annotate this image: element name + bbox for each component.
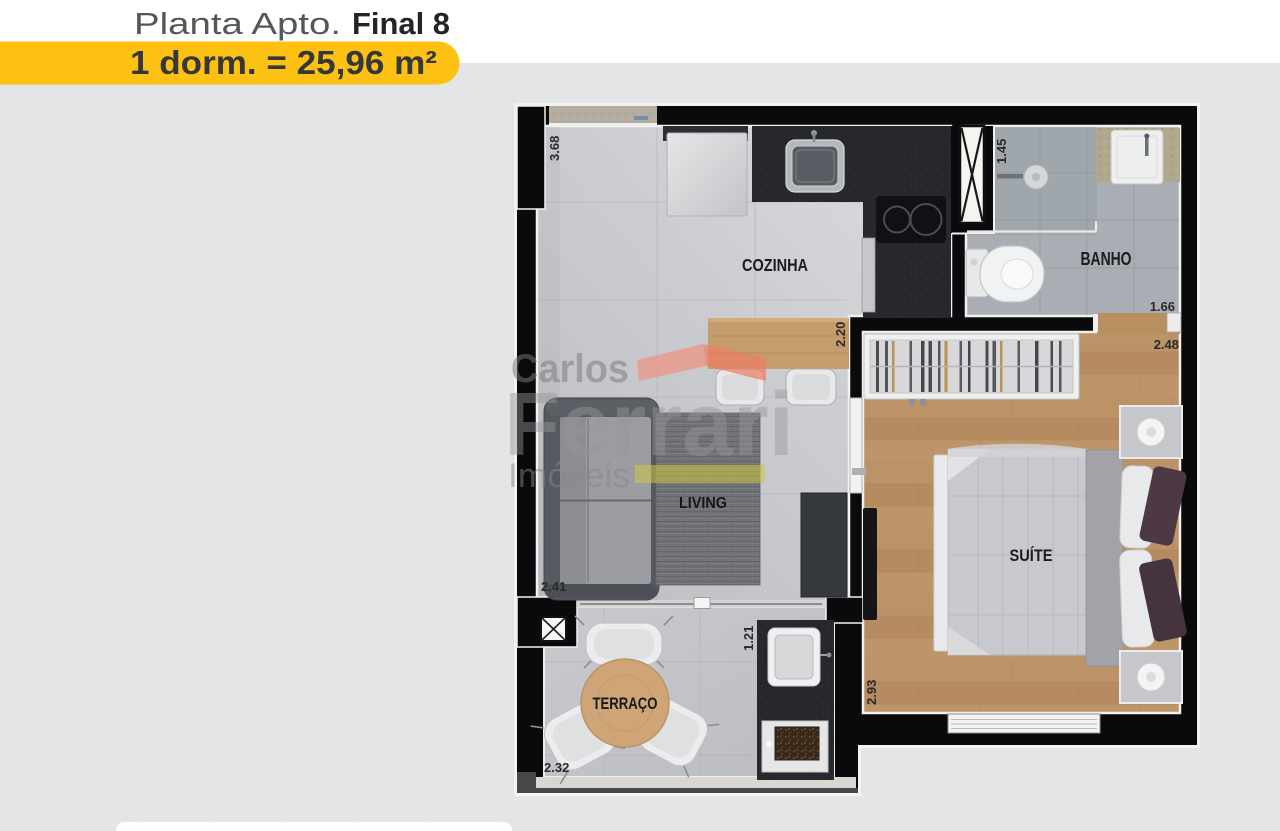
svg-text:2.48: 2.48 (1154, 337, 1179, 352)
svg-text:SUÍTE: SUÍTE (1010, 546, 1053, 565)
svg-text:1.45: 1.45 (994, 139, 1009, 164)
svg-text:2.41: 2.41 (541, 579, 566, 594)
svg-text:2.93: 2.93 (864, 680, 879, 705)
svg-text:TERRAÇO: TERRAÇO (593, 694, 658, 713)
svg-text:1.21: 1.21 (741, 626, 756, 651)
svg-text:Planta Apto.: Planta Apto. (134, 6, 341, 41)
svg-text:3.68: 3.68 (547, 136, 562, 161)
svg-text:LIVING: LIVING (679, 495, 727, 512)
svg-text:Imóveis: Imóveis (508, 457, 630, 495)
svg-text:Final 8: Final 8 (352, 6, 450, 41)
svg-text:COZINHA: COZINHA (742, 255, 808, 275)
svg-text:1 dorm. = 25,96 m²: 1 dorm. = 25,96 m² (130, 44, 437, 81)
svg-text:3.18: 3.18 (922, 131, 947, 146)
svg-text:BANHO: BANHO (1081, 249, 1132, 269)
svg-text:2.20: 2.20 (833, 322, 848, 347)
svg-text:2.32: 2.32 (544, 760, 569, 775)
svg-text:1.66: 1.66 (1150, 299, 1175, 314)
